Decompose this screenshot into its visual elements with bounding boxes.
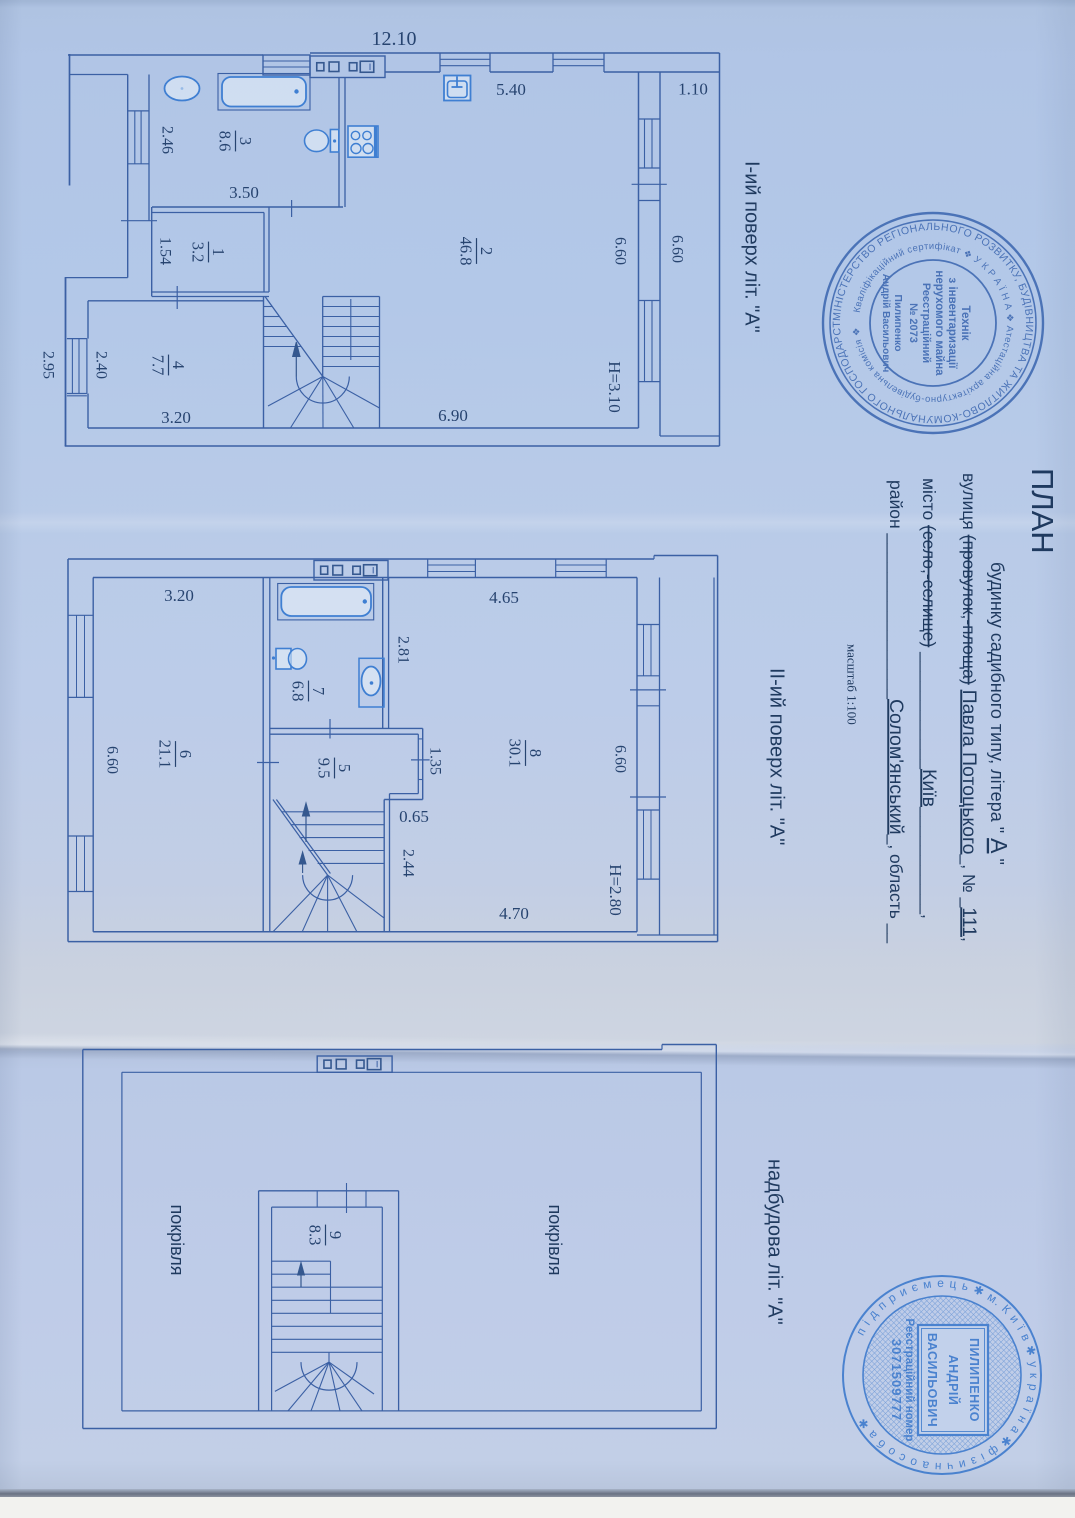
- svg-text:1.54: 1.54: [157, 237, 174, 265]
- svg-text:6: 6: [176, 750, 195, 758]
- svg-text:Н=2.80: Н=2.80: [606, 864, 625, 916]
- svg-text:4: 4: [169, 361, 188, 369]
- svg-text:Андрій Васильович: Андрій Васильович: [880, 274, 891, 373]
- svg-text:2.44: 2.44: [400, 849, 417, 877]
- svg-text:2.95: 2.95: [40, 351, 57, 379]
- svg-text:3071509777: 3071509777: [889, 1339, 904, 1421]
- svg-text:30.1: 30.1: [506, 739, 525, 768]
- svg-text:Пилипенко: Пилипенко: [892, 294, 904, 351]
- svg-text:район _________________Солом'я: район _________________Солом'янський_, о…: [885, 480, 907, 943]
- svg-text:6.60: 6.60: [669, 235, 686, 263]
- svg-text:місто (село,-селище) _________: місто (село,-селище) ____________Київ___…: [918, 478, 940, 919]
- svg-text:Н=3.10: Н=3.10: [605, 361, 624, 413]
- svg-text:2.46: 2.46: [159, 126, 176, 154]
- svg-text:6.60: 6.60: [612, 237, 629, 265]
- svg-text:1.10: 1.10: [678, 79, 708, 98]
- svg-text:0.65: 0.65: [399, 807, 429, 826]
- svg-text:5: 5: [335, 764, 354, 772]
- svg-text:3.50: 3.50: [229, 183, 259, 202]
- svg-text:3: 3: [236, 137, 255, 145]
- svg-text:8.6: 8.6: [216, 131, 235, 152]
- svg-text:будинку садибного типу, літера: будинку садибного типу, літера " А ": [986, 562, 1012, 865]
- svg-text:6.60: 6.60: [612, 745, 629, 773]
- svg-text:2.81: 2.81: [395, 636, 412, 664]
- svg-text:2: 2: [477, 247, 496, 255]
- svg-text:4.65: 4.65: [489, 588, 519, 607]
- svg-text:АНДРІЙ: АНДРІЙ: [946, 1355, 961, 1406]
- svg-text:4.70: 4.70: [499, 904, 529, 923]
- svg-text:ПЛАН: ПЛАН: [1025, 468, 1060, 554]
- svg-text:46.8: 46.8: [457, 237, 476, 266]
- svg-text:7: 7: [309, 687, 328, 695]
- svg-text:масштаб 1:100: масштаб 1:100: [845, 644, 860, 725]
- svg-text:6.90: 6.90: [438, 406, 468, 425]
- svg-text:3.20: 3.20: [161, 408, 191, 427]
- svg-text:І-ий поверх літ. "А": І-ий поверх літ. "А": [740, 161, 762, 333]
- svg-text:надбудова літ. "А": надбудова літ. "А": [763, 1159, 785, 1325]
- svg-text:3.20: 3.20: [164, 586, 194, 605]
- svg-text:Технік: Технік: [959, 306, 971, 341]
- svg-text:2.40: 2.40: [93, 351, 110, 379]
- svg-text:покрівля: покрівля: [545, 1204, 565, 1275]
- svg-text:нерухомого майна: нерухомого майна: [933, 270, 945, 376]
- svg-text:ВАСИЛЬОВИЧ: ВАСИЛЬОВИЧ: [925, 1333, 939, 1427]
- svg-text:ПИЛИПЕНКО: ПИЛИПЕНКО: [967, 1338, 981, 1422]
- svg-text:6.8: 6.8: [289, 681, 308, 702]
- svg-text:вулиця (провулок,-площа) Павла: вулиця (провулок,-площа) Павла Потоцьког…: [958, 473, 980, 942]
- svg-text:Реєстраційний: Реєстраційний: [920, 283, 932, 363]
- svg-text:з інвентаризації: з інвентаризації: [946, 278, 958, 370]
- svg-text:покрівля: покрівля: [167, 1204, 187, 1275]
- svg-text:3.2: 3.2: [189, 242, 208, 263]
- svg-text:8.3: 8.3: [306, 1225, 325, 1246]
- svg-text:6.60: 6.60: [104, 746, 121, 774]
- svg-text:ІІ-ий поверх літ. "А": ІІ-ий поверх літ. "А": [765, 668, 787, 845]
- svg-text:9.5: 9.5: [315, 758, 334, 779]
- svg-text:1.35: 1.35: [427, 747, 444, 775]
- svg-text:12.10: 12.10: [372, 28, 417, 50]
- svg-text:5.40: 5.40: [496, 80, 526, 99]
- svg-text:21.1: 21.1: [156, 740, 175, 769]
- svg-text:№ 2073: № 2073: [907, 303, 919, 343]
- svg-text:7.7: 7.7: [149, 355, 168, 376]
- svg-text:1: 1: [209, 248, 228, 256]
- svg-text:8: 8: [526, 749, 545, 757]
- svg-text:9: 9: [326, 1231, 345, 1239]
